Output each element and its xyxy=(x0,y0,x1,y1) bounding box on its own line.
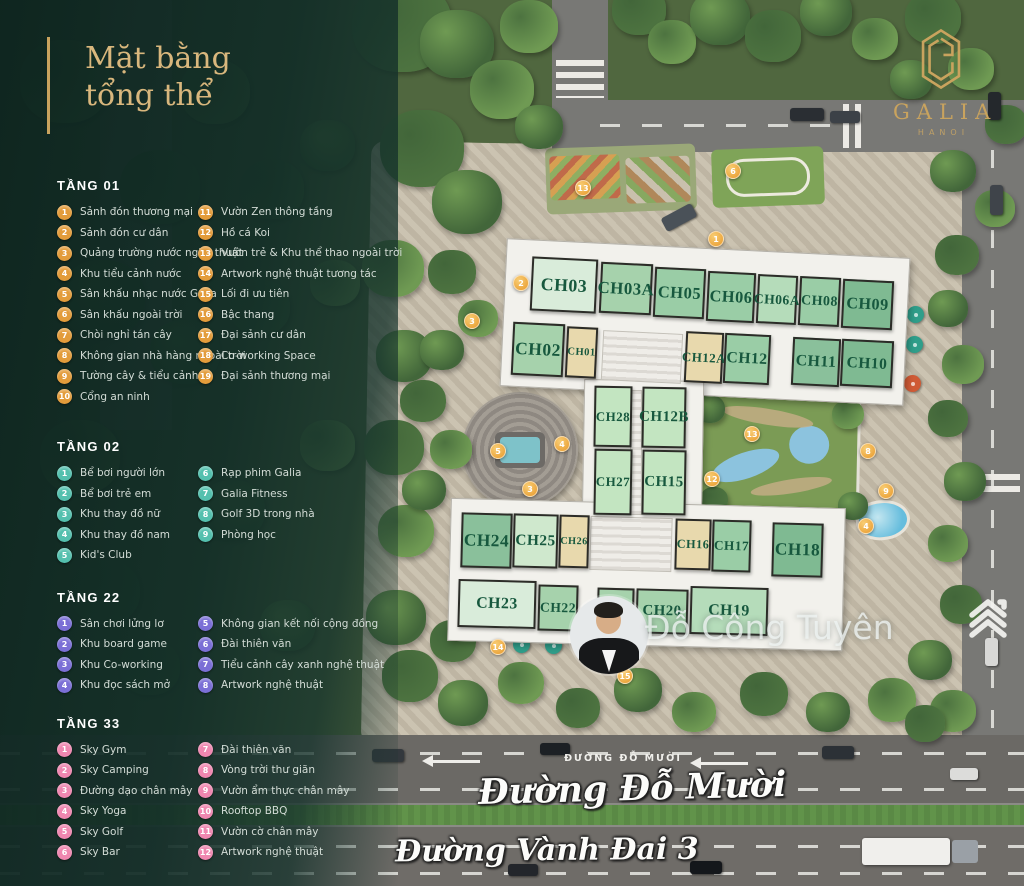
legend-column: 1Sky Gym2Sky Camping3Đường dạo chân mây4… xyxy=(57,740,198,863)
watermark-avatar xyxy=(570,596,648,674)
legend-item: 7Đài thiên văn xyxy=(198,740,387,761)
legend-item: 9Vườn ẩm thực chân mây xyxy=(198,781,387,802)
legend-column: 1Sân chơi lửng lơ2Khu board game3Khu Co-… xyxy=(57,614,198,696)
unit-CH08[interactable]: CH08 xyxy=(798,276,841,327)
legend-item: 12Hồ cá Koi xyxy=(198,223,402,244)
legend-item: 5Sky Golf xyxy=(57,822,198,843)
legend-section-header: TẦNG 33 xyxy=(57,716,387,731)
legend-section-header: TẦNG 01 xyxy=(57,178,387,193)
legend-item-label: Đường dạo chân mây xyxy=(80,785,192,797)
unit-CH03[interactable]: CH03 xyxy=(530,256,599,313)
legend-item: 6Sân khấu ngoài trời xyxy=(57,305,198,326)
unit-CH09[interactable]: CH09 xyxy=(841,279,894,330)
legend-section-1: TẦNG 011Sảnh đón thương mại2Sảnh đón cư … xyxy=(57,178,387,407)
legend-item: 4Khu thay đồ nam xyxy=(57,525,198,546)
legend-number-badge: 2 xyxy=(57,637,72,652)
car xyxy=(990,185,1003,215)
playground-court xyxy=(625,156,691,204)
tree xyxy=(438,680,488,726)
legend-item-label: Bể bơi người lớn xyxy=(80,467,165,479)
legend-sidebar: Mặt bằng tổng thể TẦNG 011Sảnh đón thươn… xyxy=(0,0,398,886)
legend-number-badge: 8 xyxy=(198,507,213,522)
legend-item-label: Bậc thang xyxy=(221,309,274,321)
legend-item-label: Sân khấu ngoài trời xyxy=(80,309,182,321)
unit-CH23[interactable]: CH23 xyxy=(457,579,536,629)
legend-item: 7Tiểu cảnh cây xanh nghệ thuật xyxy=(198,655,387,676)
avatar-hair xyxy=(594,602,623,618)
legend-item: 3Đường dạo chân mây xyxy=(57,781,198,802)
page-title: Mặt bằng tổng thể xyxy=(85,40,231,114)
legend-number-badge: 1 xyxy=(57,742,72,757)
unit-CH12[interactable]: CH12 xyxy=(723,333,771,385)
legend-item-label: Phòng học xyxy=(221,529,276,541)
legend-section-4: TẦNG 331Sky Gym2Sky Camping3Đường dạo ch… xyxy=(57,716,387,863)
legend-item-label: Vườn ẩm thực chân mây xyxy=(221,785,350,797)
legend-item: 11Vườn Zen thông tầng xyxy=(198,202,402,223)
umbrella-icon xyxy=(907,306,924,323)
legend-item-label: Cổng an ninh xyxy=(80,391,150,403)
tree xyxy=(498,662,544,704)
tree xyxy=(432,170,502,234)
unit-CH02[interactable]: CH02 xyxy=(511,322,566,377)
tree xyxy=(944,462,986,501)
legend-item-label: Đại sảnh cư dân xyxy=(221,329,306,341)
legend-item: 17Đại sảnh cư dân xyxy=(198,325,402,346)
unit-CH12B[interactable]: CH12B xyxy=(641,387,686,449)
map-marker-13: 13 xyxy=(744,426,760,442)
legend-number-badge: 17 xyxy=(198,328,213,343)
legend-item-label: Đại sảnh thương mại xyxy=(221,370,330,382)
legend-item-label: Kid's Club xyxy=(80,549,132,561)
road-label-small: ĐƯỜNG ĐỖ MƯỜI xyxy=(548,753,698,764)
legend-item: 8Không gian nhà hàng ngoài trời xyxy=(57,346,198,367)
legend-number-badge: 7 xyxy=(57,328,72,343)
unit-CH05[interactable]: CH05 xyxy=(653,267,706,319)
legend-section-header: TẦNG 02 xyxy=(57,439,387,454)
tree xyxy=(500,0,558,53)
unit-CH11[interactable]: CH11 xyxy=(791,337,841,387)
legend-item: 2Sảnh đón cư dân xyxy=(57,223,198,244)
tree xyxy=(930,150,976,192)
legend-item-label: Artwork nghệ thuật xyxy=(221,679,323,691)
legend-item: 18Co-working Space xyxy=(198,346,402,367)
tree xyxy=(690,0,750,45)
tree xyxy=(942,345,984,384)
legend-item: 3Quảng trường nước nghệ thuật xyxy=(57,243,198,264)
car xyxy=(950,768,978,780)
legend-item: 7Galia Fitness xyxy=(198,484,387,505)
legend-item: 5Kid's Club xyxy=(57,545,198,566)
legend-number-badge: 2 xyxy=(57,486,72,501)
legend-item: 5Sân khấu nhạc nước Galia xyxy=(57,284,198,305)
legend-item: 13Vườn trẻ & Khu thể thao ngoài trời xyxy=(198,243,402,264)
legend-number-badge: 9 xyxy=(198,527,213,542)
building-core-north xyxy=(601,330,683,384)
map-marker-13: 13 xyxy=(575,180,591,196)
legend-item: 4Khu đọc sách mở xyxy=(57,675,198,696)
tree xyxy=(556,688,600,728)
tree xyxy=(928,525,968,562)
legend-item: 1Sân chơi lửng lơ xyxy=(57,614,198,635)
legend-number-badge: 6 xyxy=(57,307,72,322)
legend-number-badge: 1 xyxy=(57,616,72,631)
legend-number-badge: 8 xyxy=(57,348,72,363)
legend-item: 1Sảnh đón thương mại xyxy=(57,202,198,223)
crosswalk-top xyxy=(556,60,604,98)
legend-number-badge: 16 xyxy=(198,307,213,322)
legend-item-label: Vườn cờ chân mây xyxy=(221,826,319,838)
tree xyxy=(672,692,716,732)
legend-item-label: Artwork nghệ thuật xyxy=(221,846,323,858)
tree xyxy=(420,330,464,370)
legend-item: 9Phòng học xyxy=(198,525,387,546)
courtyard-path xyxy=(721,402,814,433)
legend-number-badge: 9 xyxy=(198,783,213,798)
road-label-do-muoi: Đường Đỗ Mười xyxy=(478,764,787,813)
tree xyxy=(935,235,979,275)
legend-item-label: Khu Co-working xyxy=(80,659,163,671)
watermark-name: Đỗ Công Tuyên xyxy=(645,608,894,647)
lane-dash xyxy=(600,124,830,127)
legend-item: 5Không gian kết nối cộng đồng xyxy=(198,614,387,635)
legend-item-label: Bể bơi trẻ em xyxy=(80,488,151,500)
legend-column: 6Rạp phim Galia7Galia Fitness8Golf 3D tr… xyxy=(198,463,387,566)
legend-item-label: Vòng trời thư giãn xyxy=(221,764,315,776)
brand-city: HANOI xyxy=(886,128,996,137)
legend-column: 1Bể bơi người lớn2Bể bơi trẻ em3Khu thay… xyxy=(57,463,198,566)
legend-item-label: Artwork nghệ thuật tương tác xyxy=(221,268,377,280)
map-marker-5: 5 xyxy=(490,443,506,459)
legend-number-badge: 10 xyxy=(198,804,213,819)
legend-item-label: Sky Bar xyxy=(80,846,120,858)
unit-CH17[interactable]: CH17 xyxy=(711,519,751,572)
legend-number-badge: 6 xyxy=(198,466,213,481)
tree xyxy=(832,400,864,429)
legend-item-label: Sân khấu nhạc nước Galia xyxy=(80,288,217,300)
legend-number-badge: 12 xyxy=(198,225,213,240)
map-marker-14: 14 xyxy=(490,639,506,655)
legend-item-label: Galia Fitness xyxy=(221,488,288,500)
legend-item-label: Khu thay đồ nữ xyxy=(80,508,160,520)
umbrella-icon xyxy=(906,336,923,353)
map-marker-2: 2 xyxy=(513,275,529,291)
legend-number-badge: 1 xyxy=(57,466,72,481)
legend-section-2: TẦNG 021Bể bơi người lớn2Bể bơi trẻ em3K… xyxy=(57,439,387,566)
legend-item: 9Tường cây & tiểu cảnh xyxy=(57,366,198,387)
legend-number-badge: 7 xyxy=(198,486,213,501)
legend-column: 11Vườn Zen thông tầng12Hồ cá Koi13Vườn t… xyxy=(198,202,402,407)
tree xyxy=(740,672,788,716)
legend-number-badge: 2 xyxy=(57,225,72,240)
legend-number-badge: 5 xyxy=(57,287,72,302)
legend-item-label: Không gian kết nối cộng đồng xyxy=(221,618,378,630)
legend-number-badge: 1 xyxy=(57,205,72,220)
legend-item-label: Vườn Zen thông tầng xyxy=(221,206,333,218)
legend-item: 2Sky Camping xyxy=(57,760,198,781)
truck-trailer xyxy=(862,838,950,865)
legend-item: 10Cổng an ninh xyxy=(57,387,198,408)
tree xyxy=(515,105,563,149)
legend-column: 5Không gian kết nối cộng đồng6Đài thiên … xyxy=(198,614,387,696)
legend-number-badge: 9 xyxy=(57,369,72,384)
legend-number-badge: 14 xyxy=(198,266,213,281)
tree xyxy=(648,20,696,64)
legend-item: 8Vòng trời thư giãn xyxy=(198,760,387,781)
tree xyxy=(428,250,476,294)
tree xyxy=(400,380,446,422)
legend-sections: TẦNG 011Sảnh đón thương mại2Sảnh đón cư … xyxy=(57,178,387,863)
legend-number-badge: 8 xyxy=(198,763,213,778)
legend-item: 8Artwork nghệ thuật xyxy=(198,675,387,696)
legend-item-label: Tiểu cảnh cây xanh nghệ thuật xyxy=(221,659,384,671)
legend-item-label: Lối đi ưu tiên xyxy=(221,288,289,300)
galia-monogram-icon xyxy=(916,28,966,90)
legend-number-badge: 3 xyxy=(57,246,72,261)
legend-item: 1Sky Gym xyxy=(57,740,198,761)
legend-number-badge: 18 xyxy=(198,348,213,363)
legend-item-label: Khu thay đồ nam xyxy=(80,529,170,541)
tree xyxy=(905,705,945,742)
legend-number-badge: 10 xyxy=(57,389,72,404)
legend-item: 6Sky Bar xyxy=(57,842,198,863)
umbrella-icon xyxy=(904,375,921,392)
legend-number-badge: 5 xyxy=(57,548,72,563)
unit-CH15[interactable]: CH15 xyxy=(641,450,686,516)
legend-item-label: Rooftop BBQ xyxy=(221,805,287,817)
legend-number-badge: 3 xyxy=(57,783,72,798)
tree xyxy=(908,640,952,680)
legend-number-badge: 3 xyxy=(57,657,72,672)
galia-brand-logo: GALIA HANOI xyxy=(886,28,996,137)
courtyard-pond xyxy=(789,425,830,464)
legend-item-label: Vườn trẻ & Khu thể thao ngoài trời xyxy=(221,247,402,259)
tree xyxy=(928,400,968,437)
legend-number-badge: 12 xyxy=(198,845,213,860)
legend-item: 4Khu tiểu cảnh nước xyxy=(57,264,198,285)
legend-item-label: Sky Yoga xyxy=(80,805,126,817)
map-marker-4: 4 xyxy=(858,518,874,534)
legend-item: 2Bể bơi trẻ em xyxy=(57,484,198,505)
tree xyxy=(430,430,472,469)
left-arrow-icon xyxy=(432,760,480,763)
legend-number-badge: 2 xyxy=(57,763,72,778)
legend-item: 10Rooftop BBQ xyxy=(198,801,387,822)
unit-CH27[interactable]: CH27 xyxy=(593,449,632,516)
legend-item-label: Sảnh đón thương mại xyxy=(80,206,193,218)
unit-CH06[interactable]: CH06 xyxy=(706,271,756,323)
legend-item-label: Khu tiểu cảnh nước xyxy=(80,268,181,280)
unit-CH10[interactable]: CH10 xyxy=(840,339,894,388)
legend-item: 11Vườn cờ chân mây xyxy=(198,822,387,843)
map-marker-9: 9 xyxy=(878,483,894,499)
legend-item: 6Đài thiên văn xyxy=(198,634,387,655)
legend-number-badge: 6 xyxy=(57,845,72,860)
legend-number-badge: 7 xyxy=(198,742,213,757)
unit-CH03A[interactable]: CH03A xyxy=(599,262,653,315)
master-plan-poster: CH03CH03ACH05CH06CH06ACH08CH09CH02CH01CH… xyxy=(0,0,1024,886)
legend-number-badge: 15 xyxy=(198,287,213,302)
unit-CH01[interactable]: CH01 xyxy=(565,326,598,378)
legend-column: 1Sảnh đón thương mại2Sảnh đón cư dân3Quả… xyxy=(57,202,198,407)
legend-number-badge: 11 xyxy=(198,205,213,220)
map-marker-3: 3 xyxy=(464,313,480,329)
legend-item-label: Đài thiên văn xyxy=(221,744,291,756)
unit-CH26[interactable]: CH26 xyxy=(558,515,589,569)
map-marker-12: 12 xyxy=(704,471,720,487)
legend-item-label: Golf 3D trong nhà xyxy=(221,508,315,520)
unit-CH16[interactable]: CH16 xyxy=(674,519,711,571)
legend-item-label: Sky Gym xyxy=(80,744,127,756)
legend-item: 3Khu Co-working xyxy=(57,655,198,676)
legend-number-badge: 19 xyxy=(198,369,213,384)
legend-item-label: Sân chơi lửng lơ xyxy=(80,618,164,630)
legend-item-label: Khu board game xyxy=(80,638,167,650)
legend-item: 14Artwork nghệ thuật tương tác xyxy=(198,264,402,285)
car xyxy=(830,111,860,123)
legend-item: 15Lối đi ưu tiên xyxy=(198,284,402,305)
legend-number-badge: 4 xyxy=(57,678,72,693)
map-marker-6: 6 xyxy=(725,163,741,179)
legend-item: 3Khu thay đồ nữ xyxy=(57,504,198,525)
unit-CH28[interactable]: CH28 xyxy=(593,386,632,448)
legend-item: 16Bậc thang xyxy=(198,305,402,326)
unit-CH24[interactable]: CH24 xyxy=(460,512,512,568)
legend-item-label: Sky Camping xyxy=(80,764,149,776)
map-marker-3: 3 xyxy=(522,481,538,497)
legend-number-badge: 4 xyxy=(57,266,72,281)
legend-item: 7Chòi nghỉ tán cây xyxy=(57,325,198,346)
legend-item: 2Khu board game xyxy=(57,634,198,655)
truck-cab xyxy=(952,840,978,863)
legend-item-label: Chòi nghỉ tán cây xyxy=(80,329,172,341)
page-title-line2: tổng thể xyxy=(85,77,231,114)
unit-CH18[interactable]: CH18 xyxy=(771,522,823,577)
legend-section-3: TẦNG 221Sân chơi lửng lơ2Khu board game3… xyxy=(57,590,387,696)
legend-item-label: Sảnh đón cư dân xyxy=(80,227,168,239)
car xyxy=(790,108,824,121)
chevron-stack-logo-icon xyxy=(962,594,1014,650)
brand-name: GALIA xyxy=(886,100,996,124)
legend-number-badge: 4 xyxy=(57,527,72,542)
legend-item: 12Artwork nghệ thuật xyxy=(198,842,387,863)
tree xyxy=(402,470,446,510)
legend-column: 7Đài thiên văn8Vòng trời thư giãn9Vườn ẩ… xyxy=(198,740,387,863)
tree xyxy=(800,0,852,36)
legend-number-badge: 5 xyxy=(57,824,72,839)
legend-number-badge: 8 xyxy=(198,678,213,693)
legend-number-badge: 11 xyxy=(198,824,213,839)
legend-item: 6Rạp phim Galia xyxy=(198,463,387,484)
tree xyxy=(928,290,968,327)
title-accent-line xyxy=(47,37,50,134)
tree xyxy=(806,692,850,732)
legend-item: 4Sky Yoga xyxy=(57,801,198,822)
tree xyxy=(745,10,801,62)
legend-item: 1Bể bơi người lớn xyxy=(57,463,198,484)
legend-item: 8Golf 3D trong nhà xyxy=(198,504,387,525)
building-core-south xyxy=(589,516,672,572)
page-title-line1: Mặt bằng xyxy=(85,40,231,77)
legend-item-label: Co-working Space xyxy=(221,350,316,362)
unit-CH25[interactable]: CH25 xyxy=(512,513,558,568)
map-marker-4: 4 xyxy=(554,436,570,452)
truck xyxy=(862,838,980,865)
unit-CH12A[interactable]: CH12A xyxy=(684,331,724,384)
legend-number-badge: 4 xyxy=(57,804,72,819)
legend-item-label: Rạp phim Galia xyxy=(221,467,301,479)
courtyard-path xyxy=(750,473,833,499)
legend-number-badge: 3 xyxy=(57,507,72,522)
legend-item-label: Tường cây & tiểu cảnh xyxy=(80,370,198,382)
road-label-vanh-dai-3: Đường Vành Đai 3 xyxy=(395,832,699,870)
legend-item-label: Hồ cá Koi xyxy=(221,227,270,239)
car xyxy=(822,746,854,759)
legend-item: 19Đại sảnh thương mại xyxy=(198,366,402,387)
legend-item-label: Khu đọc sách mở xyxy=(80,679,170,691)
legend-section-header: TẦNG 22 xyxy=(57,590,387,605)
legend-item-label: Sky Golf xyxy=(80,826,123,838)
legend-item-label: Đài thiên văn xyxy=(221,638,291,650)
legend-number-badge: 6 xyxy=(198,637,213,652)
legend-number-badge: 7 xyxy=(198,657,213,672)
map-marker-1: 1 xyxy=(708,231,724,247)
map-marker-8: 8 xyxy=(860,443,876,459)
legend-number-badge: 5 xyxy=(198,616,213,631)
playground-area xyxy=(545,143,697,214)
legend-number-badge: 13 xyxy=(198,246,213,261)
unit-CH06A[interactable]: CH06A xyxy=(756,274,798,325)
